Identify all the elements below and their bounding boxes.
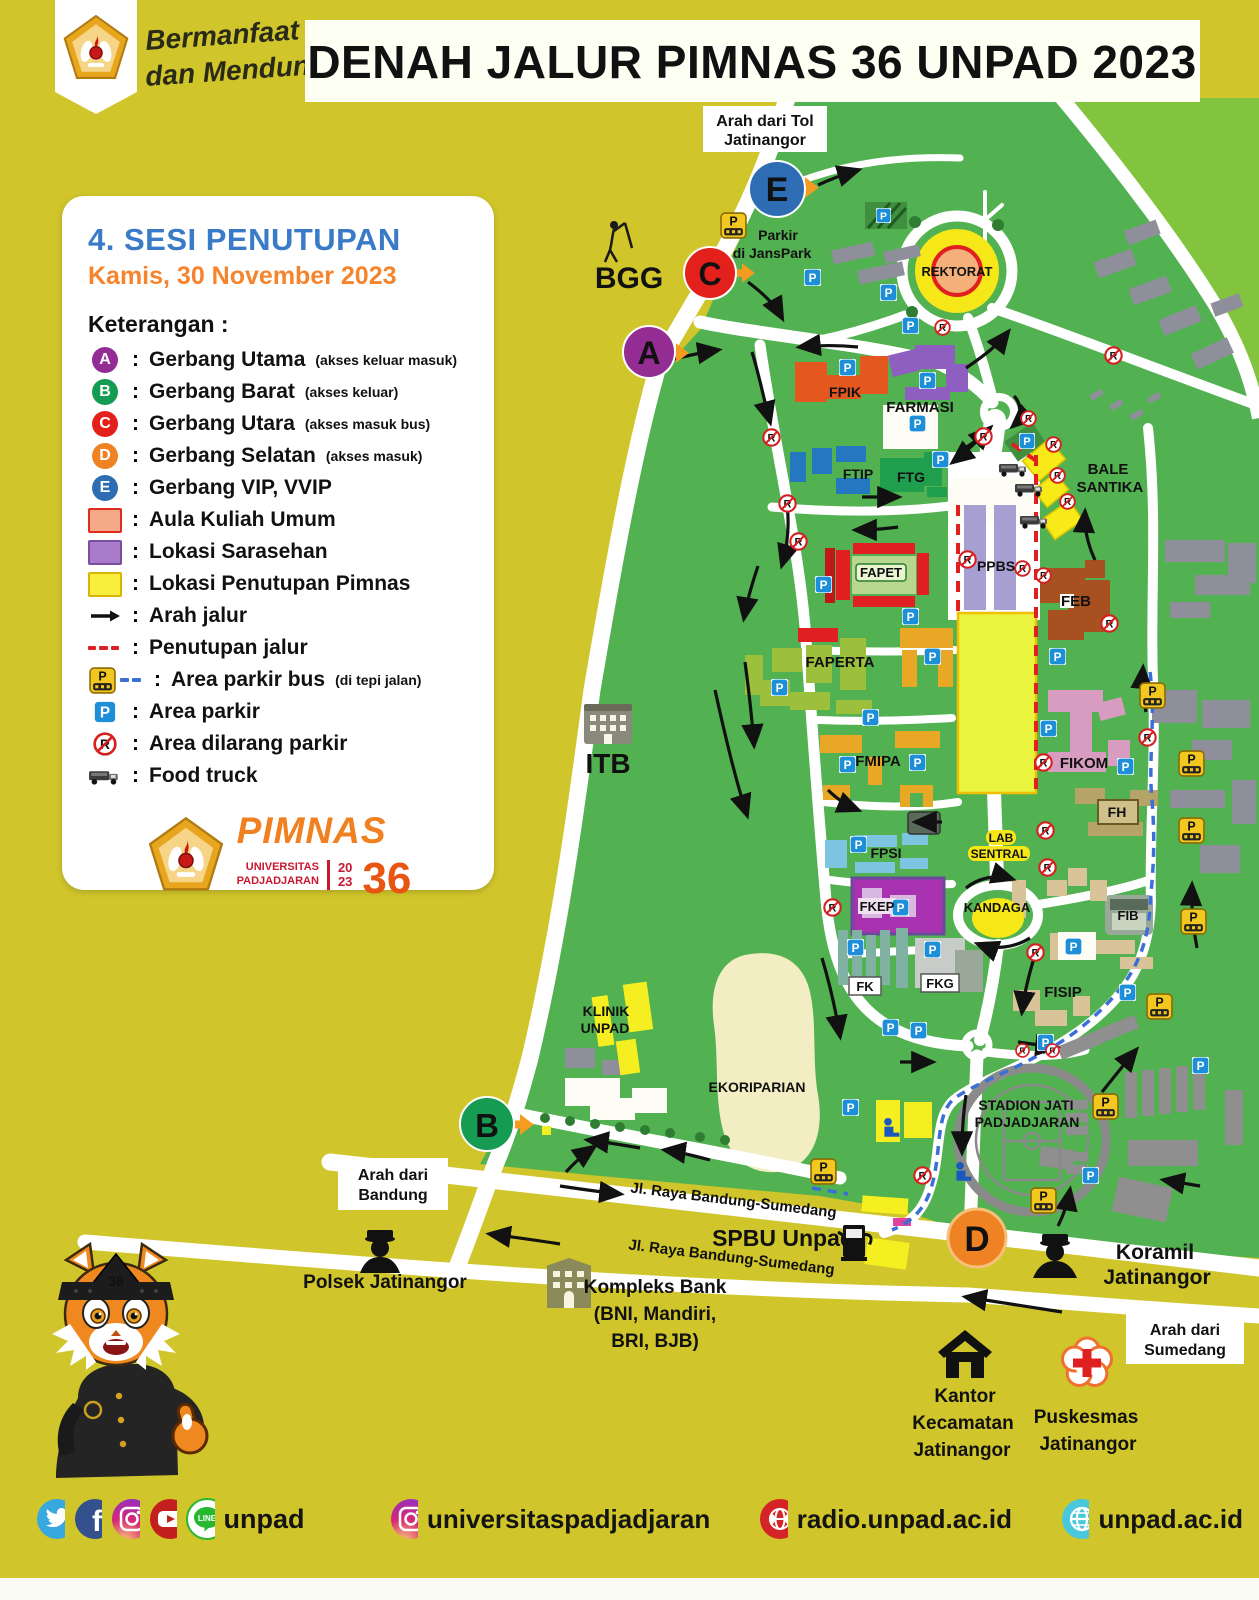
svg-text:FIB: FIB	[1118, 908, 1139, 923]
facebook-icon[interactable]: f	[74, 1498, 103, 1540]
svg-text:Jatinangor: Jatinangor	[724, 132, 806, 149]
closure-dash-icon	[88, 646, 122, 650]
web-globe-icon[interactable]	[1061, 1498, 1090, 1540]
route-arrow-icon	[89, 609, 121, 623]
pimnas-edition: 36	[362, 857, 411, 901]
bus-parking-icon	[88, 667, 144, 694]
svg-text:FIKOM: FIKOM	[1060, 755, 1108, 772]
svg-text:PPBS: PPBS	[977, 558, 1015, 574]
svg-text:Arah dari Tol: Arah dari Tol	[716, 113, 814, 130]
legend-food-truck: : Food truck	[88, 762, 470, 790]
svg-text:KLINIK: KLINIK	[583, 1003, 630, 1019]
svg-text:Jatinangor: Jatinangor	[1103, 1266, 1210, 1289]
penutupan-swatch	[88, 572, 122, 597]
gate-a-badge: A	[92, 347, 118, 373]
session-date: Kamis, 30 November 2023	[88, 262, 470, 291]
pimnas-logo: PIMNAS UNIVERSITAS PADJADJARAN 20 23 36	[88, 812, 470, 897]
session-title: 4. SESI PENUTUPAN	[88, 222, 470, 258]
svg-text:Sumedang: Sumedang	[1144, 1342, 1226, 1359]
svg-text:Koramil: Koramil	[1116, 1241, 1194, 1264]
svg-text:Bandung: Bandung	[358, 1187, 427, 1204]
mascot-badge: 36	[108, 1273, 124, 1289]
legend-gate-e: E : Gerbang VIP, VVIP	[88, 474, 470, 502]
legend-area-penutupan: : Lokasi Penutupan Pimnas	[88, 570, 470, 598]
line-icon[interactable]: LINE	[186, 1498, 215, 1540]
footer-radio-url[interactable]: radio.unpad.ac.id	[797, 1504, 1012, 1535]
food-truck-icon	[88, 768, 122, 785]
radio-globe-icon[interactable]	[759, 1498, 788, 1540]
svg-text:BGG: BGG	[595, 262, 663, 295]
footer-instagram-handle[interactable]: universitaspadjadjaran	[427, 1504, 710, 1535]
svg-text:FAPET: FAPET	[860, 565, 902, 580]
svg-text:KANDAGA: KANDAGA	[964, 900, 1031, 915]
legend-gate-d: D : Gerbang Selatan (akses masuk)	[88, 442, 470, 470]
page-title: DENAH JALUR PIMNAS 36 UNPAD 2023	[307, 36, 1196, 88]
svg-text:Kompleks Bank: Kompleks Bank	[584, 1277, 727, 1298]
gate-e-badge: E	[92, 475, 118, 501]
svg-text:FISIP: FISIP	[1044, 984, 1082, 1001]
legend-gate-b: B : Gerbang Barat (akses keluar)	[88, 378, 470, 406]
mascot-thumb-hand	[173, 1403, 207, 1453]
gate-b-badge: B	[92, 379, 118, 405]
svg-text:UNPAD: UNPAD	[581, 1020, 630, 1036]
golfer-icon	[605, 221, 632, 262]
legend-heading: Keterangan :	[88, 311, 470, 338]
legend-penutupan-jalur: : Penutupan jalur	[88, 634, 470, 662]
footer-bar: f LINE unpad universitaspadjadjaran radi…	[0, 1490, 1259, 1548]
svg-text:E: E	[766, 171, 789, 209]
svg-text:FARMASI: FARMASI	[886, 399, 954, 416]
svg-text:FH: FH	[1108, 804, 1127, 820]
penutupan-highlight-area	[958, 613, 1036, 793]
poster-page: P P R	[0, 0, 1259, 1600]
gate-d-badge: D	[92, 443, 118, 469]
unpad-crest	[147, 816, 225, 894]
aula-swatch	[88, 508, 122, 533]
svg-text:FTG: FTG	[897, 469, 925, 485]
svg-text:FMIPA: FMIPA	[855, 753, 901, 770]
svg-text:REKTORAT: REKTORAT	[921, 264, 992, 279]
legend-gate-a: A : Gerbang Utama (akses keluar masuk)	[88, 346, 470, 374]
svg-text:A: A	[637, 335, 660, 371]
svg-text:Parkir: Parkir	[758, 227, 798, 243]
svg-text:FAPERTA: FAPERTA	[806, 654, 875, 671]
svg-text:EKORIPARIAN: EKORIPARIAN	[709, 1079, 806, 1095]
legend-card: 4. SESI PENUTUPAN Kamis, 30 November 202…	[62, 196, 494, 890]
svg-text:FPSI: FPSI	[870, 845, 901, 861]
legend-arah-jalur: : Arah jalur	[88, 602, 470, 630]
legend-area-parkir: : Area parkir	[88, 698, 470, 726]
svg-text:(BNI, Mandiri,: (BNI, Mandiri,	[594, 1304, 716, 1325]
svg-text:D: D	[964, 1220, 989, 1259]
svg-text:Jatinangor: Jatinangor	[1039, 1434, 1137, 1455]
legend-parkir-bus: : Area parkir bus (di tepi jalan)	[88, 666, 470, 694]
footer-handle-unpad[interactable]: unpad	[224, 1504, 305, 1535]
gate-c-badge: C	[92, 411, 118, 437]
svg-text:FEB: FEB	[1061, 593, 1091, 610]
bottom-strip	[0, 1578, 1259, 1600]
svg-text:LINE: LINE	[198, 1514, 215, 1523]
svg-text:B: B	[475, 1107, 499, 1144]
twitter-icon[interactable]	[36, 1498, 65, 1540]
svg-text:Jatinangor: Jatinangor	[913, 1440, 1011, 1461]
footer-web-url[interactable]: unpad.ac.id	[1098, 1504, 1242, 1535]
svg-text:C: C	[698, 256, 721, 292]
svg-text:Kecamatan: Kecamatan	[912, 1413, 1013, 1434]
legend-area-sarasehan: : Lokasi Sarasehan	[88, 538, 470, 566]
mascot: 36	[52, 1244, 207, 1478]
parking-icon	[88, 701, 122, 723]
police-icon-polsek	[360, 1230, 400, 1273]
svg-text:STADION JATI: STADION JATI	[978, 1097, 1073, 1113]
sarasehan-swatch	[88, 540, 122, 565]
svg-text:Puskesmas: Puskesmas	[1034, 1407, 1139, 1428]
svg-text:FKG: FKG	[926, 976, 953, 991]
instagram-icon[interactable]	[111, 1498, 140, 1540]
svg-text:Kantor: Kantor	[934, 1386, 996, 1407]
svg-text:LAB: LAB	[989, 831, 1014, 845]
svg-text:f: f	[92, 1505, 103, 1538]
svg-text:BALE: BALE	[1088, 461, 1129, 478]
svg-text:PADJADJARAN: PADJADJARAN	[975, 1114, 1080, 1130]
svg-text:FK: FK	[856, 979, 874, 994]
svg-text:di JansPark: di JansPark	[733, 245, 812, 261]
puskesmas-icon	[1063, 1338, 1112, 1386]
house-icon-kecamatan	[938, 1330, 992, 1378]
svg-text:SENTRAL: SENTRAL	[971, 847, 1028, 861]
rektorat-building: REKTORAT	[915, 229, 999, 313]
instagram-icon-2[interactable]	[390, 1498, 419, 1540]
svg-text:FTIP: FTIP	[843, 466, 873, 482]
legend-dilarang-parkir: : Area dilarang parkir	[88, 730, 470, 758]
svg-text:FKEP: FKEP	[860, 899, 895, 914]
svg-text:Arah dari: Arah dari	[358, 1167, 428, 1184]
svg-text:SPBU Unpad: SPBU Unpad	[712, 1225, 854, 1251]
legend-area-aula: : Aula Kuliah Umum	[88, 506, 470, 534]
legend-gate-c: C : Gerbang Utara (akses masuk bus)	[88, 410, 470, 438]
svg-text:SANTIKA: SANTIKA	[1077, 479, 1144, 496]
svg-text:BRI, BJB): BRI, BJB)	[611, 1331, 699, 1352]
svg-text:Arah dari: Arah dari	[1150, 1322, 1220, 1339]
svg-text:FPIK: FPIK	[829, 384, 861, 400]
header: Bermanfaat dan Mendunia DENAH JALUR PIMN…	[55, 0, 1200, 114]
youtube-icon[interactable]	[149, 1498, 178, 1540]
no-parking-icon	[88, 732, 122, 756]
svg-text:Polsek Jatinangor: Polsek Jatinangor	[303, 1272, 467, 1293]
itb-building-icon	[584, 704, 632, 744]
svg-text:ITB: ITB	[585, 748, 630, 779]
pimnas-name: PIMNAS	[237, 812, 412, 849]
tagline-line1: Bermanfaat	[144, 14, 302, 56]
